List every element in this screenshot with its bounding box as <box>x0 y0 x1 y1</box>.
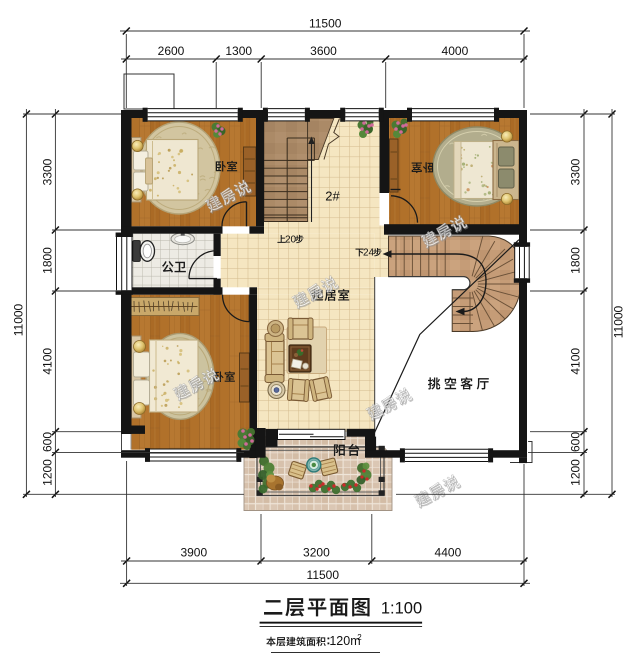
svg-text:3600: 3600 <box>310 44 337 58</box>
svg-text:11000: 11000 <box>11 303 25 336</box>
svg-text:600: 600 <box>569 432 583 452</box>
svg-text:1200: 1200 <box>40 459 54 486</box>
svg-text:600: 600 <box>40 432 54 452</box>
svg-text:1800: 1800 <box>569 247 583 274</box>
svg-text:4100: 4100 <box>40 348 54 375</box>
svg-text:2#: 2# <box>325 189 340 204</box>
svg-text:1:100: 1:100 <box>381 600 422 618</box>
svg-text:20: 20 <box>285 235 297 246</box>
svg-text:11500: 11500 <box>309 17 342 31</box>
svg-text:11500: 11500 <box>307 568 340 582</box>
svg-text:2: 2 <box>357 633 362 642</box>
svg-text:2600: 2600 <box>158 44 185 58</box>
svg-text:3200: 3200 <box>303 546 330 560</box>
svg-text:4400: 4400 <box>435 546 462 560</box>
svg-text:4100: 4100 <box>569 348 583 375</box>
svg-text:3300: 3300 <box>40 158 54 185</box>
svg-text:120m: 120m <box>329 634 360 648</box>
svg-text:3300: 3300 <box>569 158 583 185</box>
svg-text:1300: 1300 <box>225 44 252 58</box>
svg-text:24: 24 <box>363 248 375 259</box>
svg-text:1800: 1800 <box>40 247 54 274</box>
svg-text:1200: 1200 <box>569 459 583 486</box>
svg-text:11000: 11000 <box>612 305 626 338</box>
svg-text:3900: 3900 <box>180 546 207 560</box>
svg-text:4000: 4000 <box>442 44 469 58</box>
